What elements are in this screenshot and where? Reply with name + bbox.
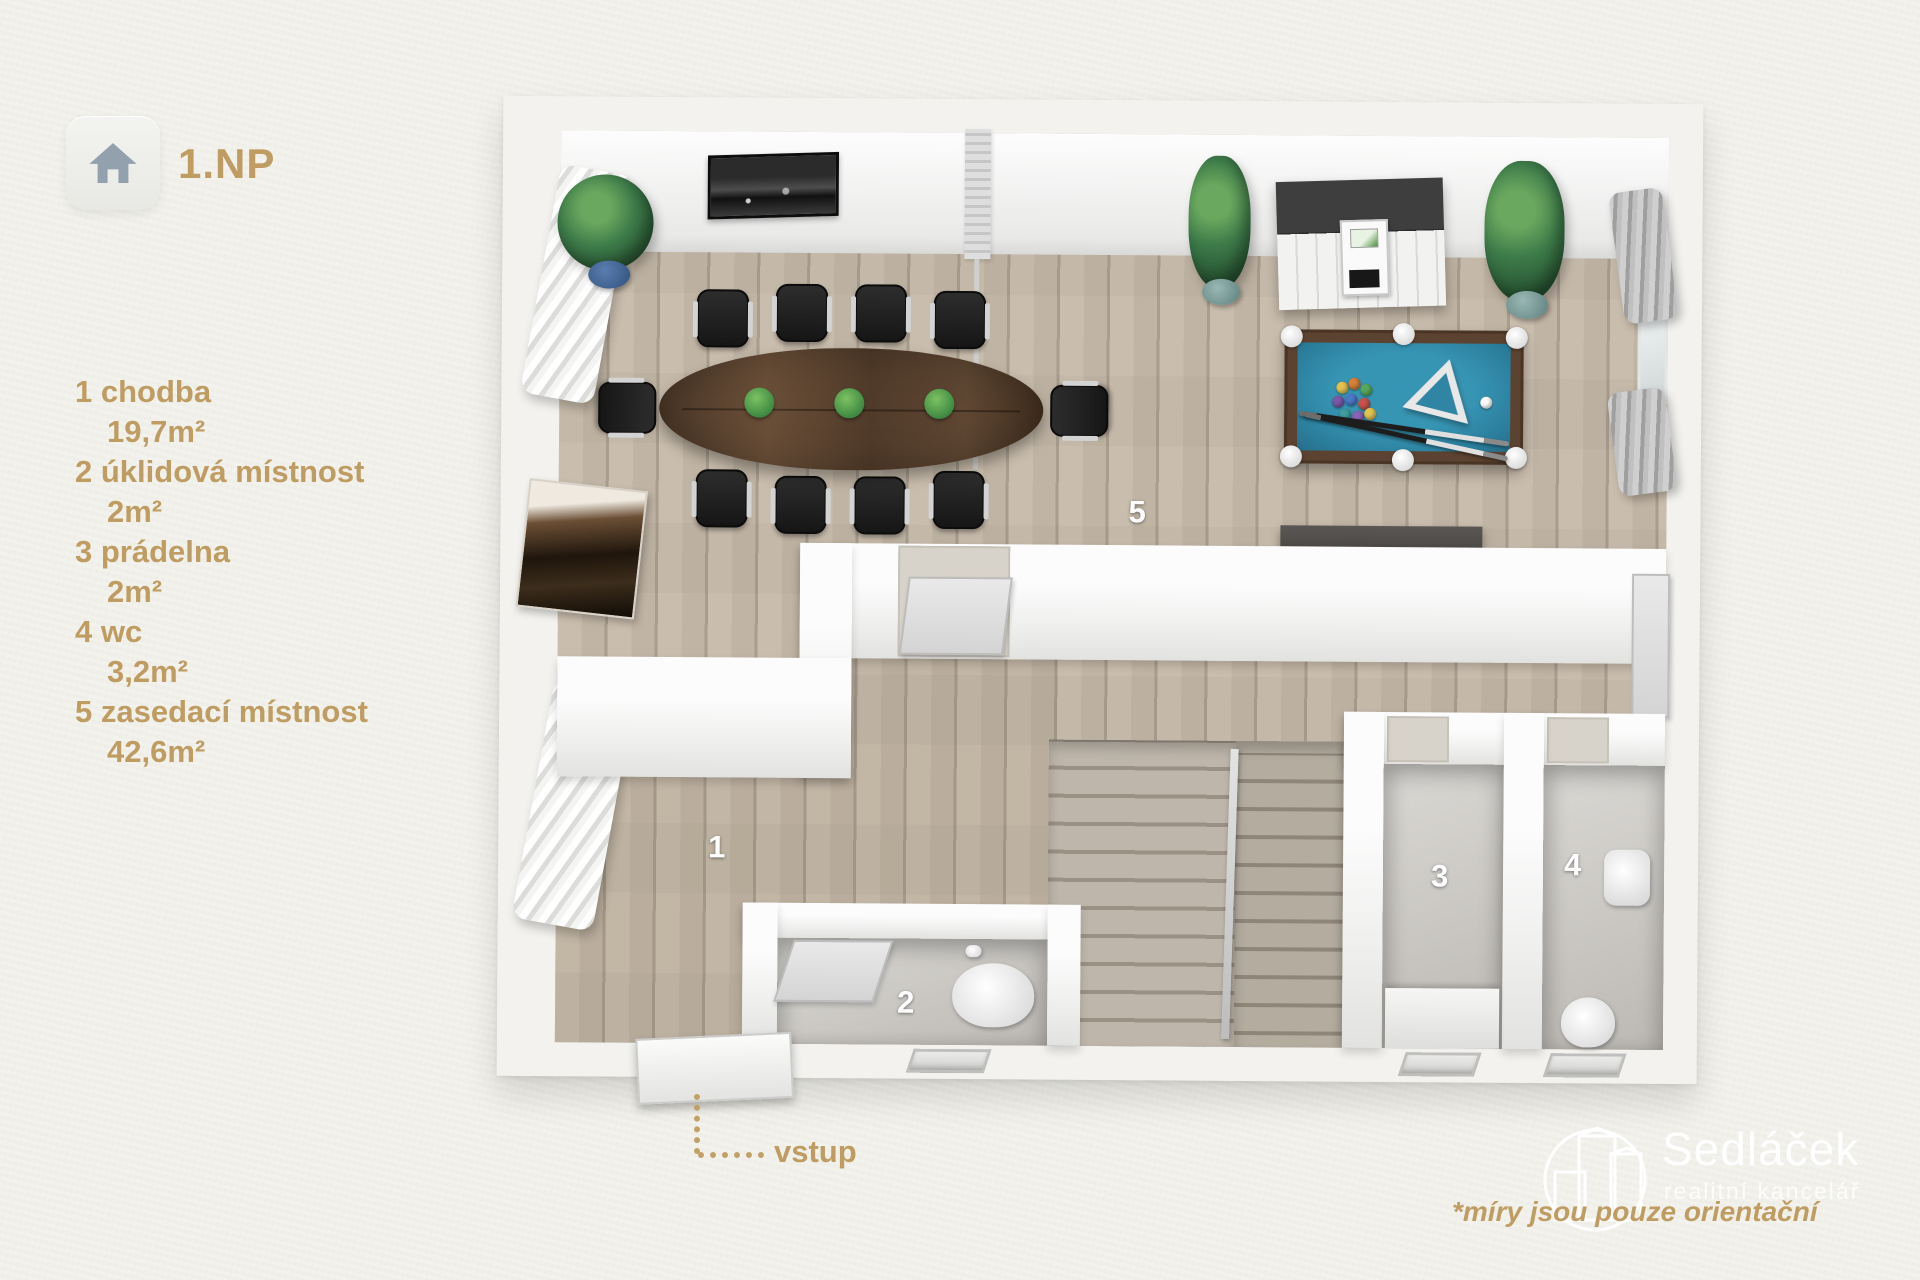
legend-room-5: 5 zasedací místnost bbox=[75, 692, 368, 732]
home-icon bbox=[84, 134, 142, 192]
legend-room-4: 4 wc bbox=[75, 612, 368, 652]
legend-room-3: 3 prádelna bbox=[75, 532, 368, 572]
table-plant bbox=[924, 389, 954, 419]
legend-area-2: 2m² bbox=[75, 492, 368, 532]
legend-area-4: 3,2m² bbox=[75, 652, 368, 692]
billiard-ball bbox=[1360, 384, 1372, 396]
billiard-ball bbox=[1348, 378, 1360, 390]
pool-table bbox=[1284, 329, 1524, 465]
radiator bbox=[964, 129, 991, 259]
bottom-window bbox=[906, 1049, 992, 1073]
pool-pocket bbox=[1281, 325, 1303, 347]
legend-room-2: 2 úklidová místnost bbox=[75, 452, 368, 492]
cleaning-room-top-wall bbox=[743, 903, 1058, 940]
laundry-doorway bbox=[1387, 716, 1449, 762]
pool-pocket bbox=[1506, 327, 1528, 349]
legend-room-1: 1 chodba bbox=[75, 372, 368, 412]
cleaning-room-right-wall bbox=[1047, 905, 1081, 1046]
entrance-door bbox=[635, 1032, 794, 1105]
conference-chair bbox=[853, 476, 905, 534]
conference-chair bbox=[855, 284, 907, 342]
entrance-path-horizontal bbox=[698, 1152, 764, 1158]
floor-selector-badge[interactable] bbox=[66, 116, 160, 210]
tall-plant-left bbox=[1188, 156, 1251, 288]
legend-area-1: 19,7m² bbox=[75, 412, 368, 452]
bottom-window bbox=[1543, 1053, 1627, 1077]
entrance-path-vertical bbox=[694, 1094, 700, 1154]
wall-art-cityscape bbox=[708, 152, 839, 220]
wc-doorway bbox=[1547, 717, 1609, 763]
conference-chair bbox=[697, 289, 749, 347]
tall-plant-right-pot bbox=[1506, 291, 1548, 319]
cleaning-room-basin bbox=[952, 963, 1034, 1028]
cue-ball bbox=[1480, 397, 1492, 409]
corner-plant bbox=[557, 174, 654, 271]
billiard-ball bbox=[1332, 396, 1344, 408]
bottom-window bbox=[1398, 1052, 1482, 1076]
legend-area-3: 2m² bbox=[75, 572, 368, 612]
meeting-room-door bbox=[899, 577, 1013, 656]
laundry-counter bbox=[1385, 988, 1499, 1049]
conference-chair bbox=[934, 291, 986, 349]
floor-title: 1.NP bbox=[178, 140, 275, 188]
wall-between-3-4 bbox=[1502, 713, 1544, 1049]
buildings-logo-icon bbox=[1527, 1110, 1667, 1250]
pool-pocket bbox=[1392, 449, 1414, 471]
hallway-half-wall bbox=[557, 656, 852, 778]
conference-chair bbox=[774, 476, 826, 534]
stairs-side-wall bbox=[1342, 712, 1384, 1048]
label-hallway: 1 bbox=[708, 829, 726, 865]
table-plant bbox=[744, 388, 774, 418]
corner-plant-pot bbox=[588, 260, 630, 288]
staircase-flight-right bbox=[1234, 741, 1344, 1048]
billiard-ball bbox=[1364, 408, 1376, 420]
conference-chair bbox=[932, 471, 984, 529]
room-legend: 1 chodba 19,7m² 2 úklidová místnost 2m² … bbox=[75, 372, 368, 772]
label-laundry: 3 bbox=[1431, 858, 1449, 894]
wc-sink bbox=[1604, 850, 1650, 906]
paper-holder bbox=[965, 945, 981, 957]
pool-pocket bbox=[1393, 323, 1415, 345]
wall-art-abstract bbox=[515, 478, 648, 619]
conference-chair bbox=[776, 284, 828, 342]
disclaimer-note: *míry jsou pouze orientační bbox=[1452, 1196, 1818, 1228]
corridor-right-door bbox=[1631, 574, 1670, 718]
label-wc: 4 bbox=[1564, 847, 1582, 883]
pool-pocket bbox=[1280, 445, 1302, 467]
pool-pocket bbox=[1505, 447, 1527, 469]
brand-name: Sedláček bbox=[1662, 1122, 1859, 1176]
cleaning-room-door bbox=[773, 940, 894, 1003]
conference-chair bbox=[695, 469, 747, 527]
floorplan-3d-render: 1 2 3 4 5 bbox=[497, 96, 1704, 1084]
cleaning-room-left-wall bbox=[742, 903, 778, 1044]
conference-chair-end bbox=[1050, 385, 1108, 437]
billiard-ball bbox=[1336, 382, 1348, 394]
coffee-machine-tray bbox=[1349, 269, 1379, 288]
entrance-label: vstup bbox=[774, 1134, 857, 1170]
label-cleaning-room: 2 bbox=[897, 985, 915, 1021]
coffee-machine bbox=[1340, 219, 1390, 296]
table-plant bbox=[834, 388, 864, 418]
conference-chair-end bbox=[598, 381, 656, 433]
billiard-ball bbox=[1345, 394, 1357, 406]
tall-plant-left-pot bbox=[1202, 279, 1240, 305]
label-meeting-room: 5 bbox=[1128, 494, 1146, 530]
wc-toilet bbox=[1561, 997, 1615, 1047]
coffee-machine-screen bbox=[1350, 228, 1379, 248]
floorplan-page: { "floor_badge": { "label": "1.NP", "ico… bbox=[0, 0, 1920, 1280]
legend-area-5: 42,6m² bbox=[75, 732, 368, 772]
tall-plant-right bbox=[1484, 161, 1565, 302]
kitchenette-cabinet bbox=[1276, 178, 1447, 311]
